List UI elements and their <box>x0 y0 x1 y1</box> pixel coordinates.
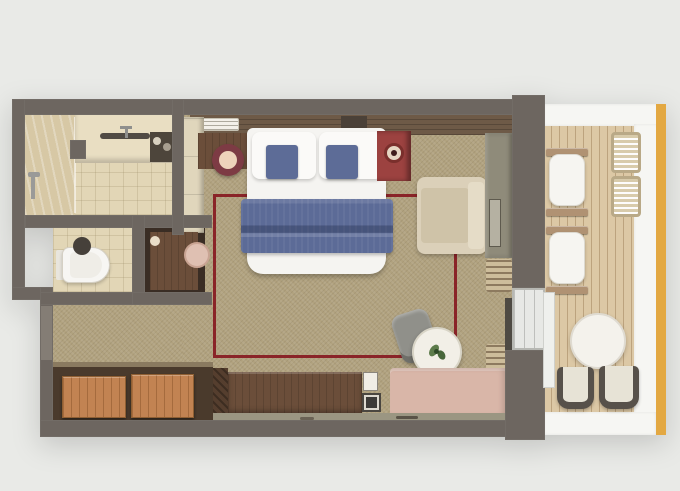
bench-sofa <box>390 368 508 417</box>
balcony-top-ledge <box>544 104 666 126</box>
balcony-round-table <box>570 313 626 369</box>
shower-floor <box>25 115 75 215</box>
balcony-dark-chair-2 <box>599 366 639 409</box>
hull-accent-strip <box>656 104 666 435</box>
shower-bar <box>31 177 35 199</box>
niche-cup <box>150 236 160 246</box>
bedside-lamp-shade <box>219 151 237 169</box>
wall-balcony-partition-upper <box>512 95 545 288</box>
wall-left-upper <box>12 99 25 300</box>
wall-below-toilet <box>40 292 145 305</box>
wall-bottom <box>40 420 518 437</box>
shower-wall-stub <box>70 140 86 159</box>
balcony-glass-door <box>512 288 545 350</box>
accent-cushion-left <box>266 145 298 179</box>
amenity-bottle-2 <box>163 143 171 151</box>
balcony-dark-chair-1 <box>557 367 594 409</box>
entry-door <box>41 306 52 360</box>
armchair-back <box>468 182 484 249</box>
wall-balcony-partition-lower <box>505 350 545 440</box>
balcony-chair1-bottom-bar <box>546 208 588 216</box>
balcony-glass-panel <box>543 292 555 388</box>
screenshot-root: { "meta": { "title": "cruise-ship-verand… <box>0 0 680 491</box>
photo-frame-image <box>366 397 377 408</box>
balcony-lounger-2 <box>611 176 641 217</box>
wardrobe-top-rail <box>53 362 213 367</box>
toilet-seat <box>70 252 102 278</box>
amenity-bottle-1 <box>153 137 161 145</box>
wardrobe-door-right <box>131 374 194 418</box>
toilet-bin <box>73 237 91 255</box>
balcony-bottom-ledge <box>544 412 656 435</box>
accent-cushion-right <box>326 145 358 179</box>
wardrobe-door-left <box>62 376 126 418</box>
minibar-card <box>363 372 378 391</box>
sill-pen-item <box>396 416 418 419</box>
table-flower-center <box>434 349 439 354</box>
nightstand-lamp-dot <box>391 150 397 156</box>
long-dresser <box>228 372 362 415</box>
rattan-bench-upper <box>486 259 512 292</box>
wall-bathroom-right <box>172 99 184 235</box>
wall-artwork <box>341 116 367 128</box>
balcony-chair1-cushion <box>549 154 585 206</box>
balcony-lounger-1 <box>611 132 641 173</box>
bed-duvet <box>241 199 393 253</box>
balcony-chair2-cushion <box>549 232 585 284</box>
wall-below-niche <box>132 292 212 305</box>
wall-top <box>12 99 545 115</box>
armchair-seat <box>421 188 469 243</box>
vanity-faucet-stem <box>125 126 128 138</box>
niche-stool <box>184 242 210 268</box>
stateroom-floor-plan <box>0 0 680 491</box>
tv-screen <box>489 199 501 247</box>
